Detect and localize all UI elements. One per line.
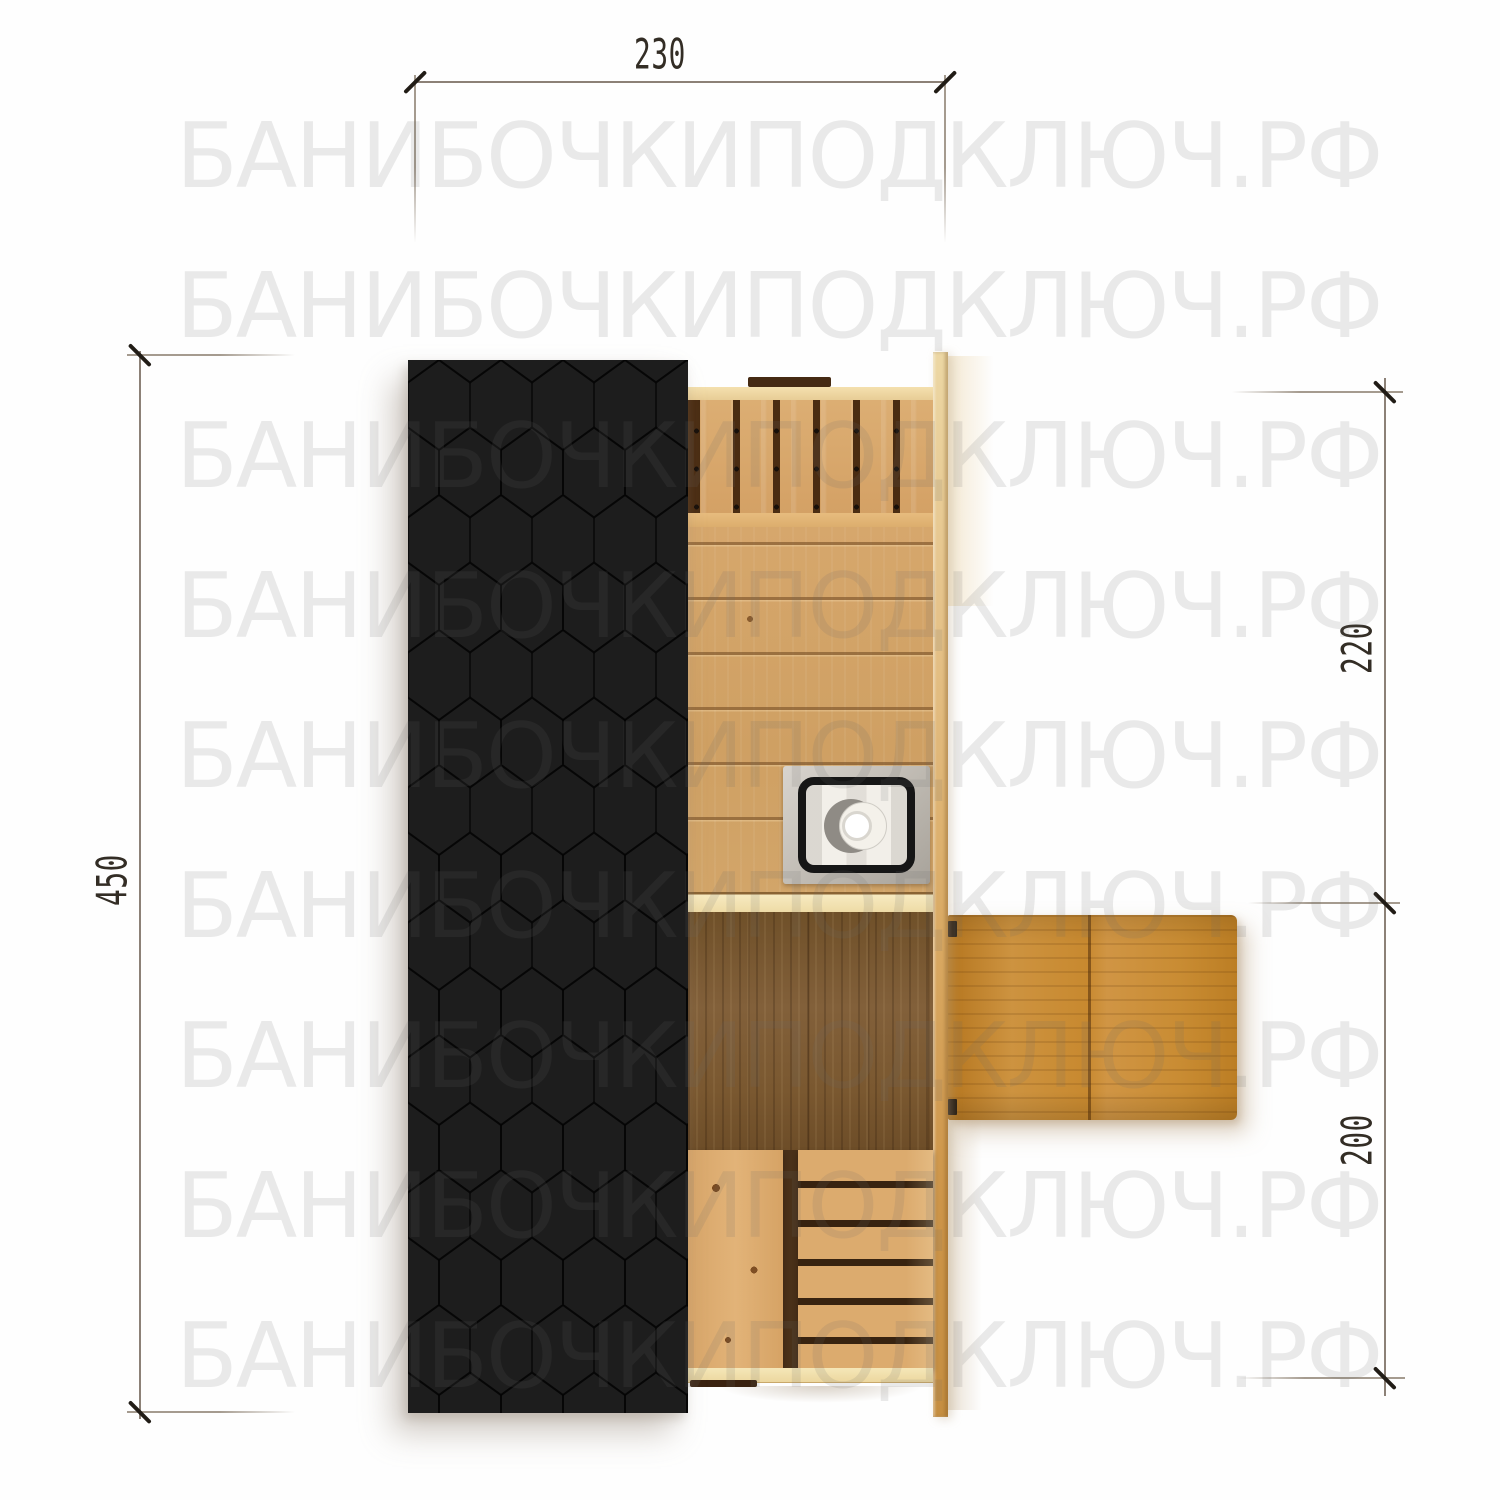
extension-line-right-bottom xyxy=(1238,1377,1405,1379)
bench-edge-board xyxy=(688,513,933,528)
terrace-platform xyxy=(948,915,1237,1120)
sauna-floor-plan-canvas: 230 450 220 200 БАНИБОЧКИПОДКЛЮЧ.РФ БАНИ… xyxy=(0,0,1500,1500)
entrance-room-floor xyxy=(688,912,933,1150)
interior-plan xyxy=(688,377,933,1387)
wall-glow-shadow xyxy=(948,356,994,606)
dimension-label-right-lower: 200 xyxy=(1333,1114,1382,1166)
vent-slot-bottom xyxy=(690,1380,757,1387)
platform-hinge-top xyxy=(948,921,957,937)
partition-wall xyxy=(688,892,933,912)
platform-hinge-bottom xyxy=(948,1099,957,1115)
extension-line-left-bottom xyxy=(127,1411,295,1413)
building-bottom-shadow xyxy=(676,1386,966,1410)
vent-slot-top xyxy=(748,377,831,387)
bench-right-slatted xyxy=(798,1150,933,1368)
watermark-row: БАНИБОЧКИПОДКЛЮЧ.РФ xyxy=(176,262,1381,352)
entrance-bench-zone xyxy=(688,1150,933,1368)
dimension-line-right xyxy=(1384,378,1386,1396)
platform-board-seam xyxy=(1088,915,1091,1120)
end-wall-board xyxy=(933,352,948,1417)
sauna-stove-top-view xyxy=(783,766,930,884)
bench-left-solid xyxy=(688,1150,783,1368)
dimension-label-right-upper: 220 xyxy=(1333,622,1382,674)
watermark-row: БАНИБОЧКИПОДКЛЮЧ.РФ xyxy=(176,112,1381,202)
extension-line-left-top xyxy=(127,354,295,356)
roof-panel-hex-shingles xyxy=(408,360,688,1413)
chimney-pipe xyxy=(842,811,872,841)
extension-line-right-top xyxy=(1232,391,1403,393)
extension-line-top-left xyxy=(414,75,416,243)
sauna-bench-slatted xyxy=(688,400,933,513)
top-wall-board xyxy=(688,387,933,401)
dimension-line-left xyxy=(139,351,141,1419)
dimension-label-height: 450 xyxy=(88,854,137,906)
hexagon-shingle-pattern xyxy=(408,360,688,1413)
extension-line-right-middle xyxy=(1248,902,1400,904)
dimension-label-width: 230 xyxy=(634,30,686,79)
dimension-line-top xyxy=(414,81,945,83)
wall-lower-shadow xyxy=(948,1120,982,1410)
extension-line-top-right xyxy=(944,75,946,243)
